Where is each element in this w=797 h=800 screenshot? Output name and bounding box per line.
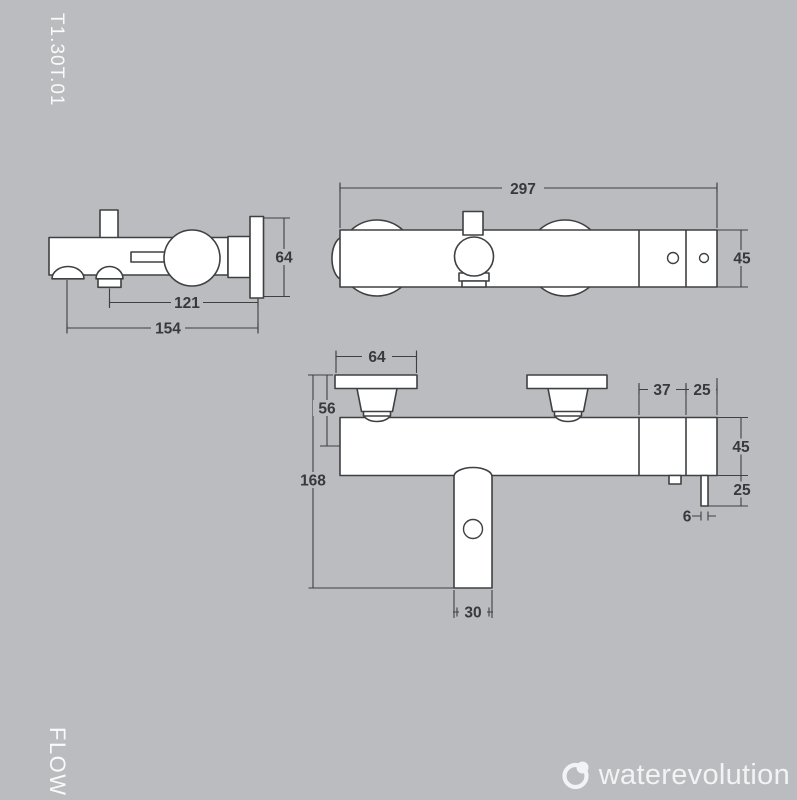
wall-plate-side	[250, 217, 264, 299]
dim-end-section: 25	[693, 382, 711, 399]
diverter-knob	[100, 210, 118, 238]
top-view: 297 45	[332, 181, 754, 296]
right-wall-plate	[527, 375, 607, 389]
dim-plate-width: 64	[368, 349, 386, 366]
logo-ring-icon	[560, 757, 594, 793]
cartridge-housing	[228, 237, 250, 278]
technical-drawing: 121 154 64 297 45	[0, 0, 797, 800]
outlet-pipe	[701, 476, 708, 507]
dim-total-height: 168	[300, 473, 326, 490]
dim-plate-to-center: 56	[318, 401, 336, 418]
spout-outlet-base	[98, 279, 121, 288]
brand-logo: waterevolution	[560, 757, 790, 793]
drawing-sheet: T1.30T.01 FLOW 121 154 64	[0, 0, 797, 800]
dim-cartridge-section: 37	[653, 382, 670, 399]
logo-text: waterevolution	[599, 761, 790, 790]
left-wall-plate	[335, 375, 417, 389]
dim-plate-height: 64	[275, 250, 293, 267]
front-view: 64 56 168 30 37 25 45 25 6	[295, 349, 755, 622]
spout-hole	[464, 520, 483, 539]
mixer-body-top	[340, 230, 717, 287]
dim-body-height: 45	[732, 439, 750, 456]
mount-hole-right	[700, 254, 709, 263]
right-mount-cone	[548, 389, 588, 412]
dim-spout-to-wall: 121	[174, 295, 200, 312]
dim-outlet-drop: 25	[733, 482, 751, 499]
dim-total-width: 297	[510, 181, 536, 198]
dim-outlet-width: 6	[683, 509, 692, 526]
dim-body-depth: 45	[733, 251, 751, 268]
dim-shower-to-wall: 154	[155, 321, 181, 338]
stop-button	[669, 476, 681, 485]
left-mount-cone	[357, 389, 397, 412]
mixer-body-front	[340, 418, 717, 476]
lever-top	[463, 212, 483, 236]
handle-knob-top	[455, 237, 494, 276]
dim-spout-width: 30	[464, 605, 481, 622]
handle-base-lower	[462, 281, 486, 287]
mount-hole-left	[668, 253, 679, 264]
handle-knob-circle	[164, 230, 220, 286]
side-view: 121 154 64	[49, 210, 297, 338]
lever-handle	[131, 252, 167, 262]
